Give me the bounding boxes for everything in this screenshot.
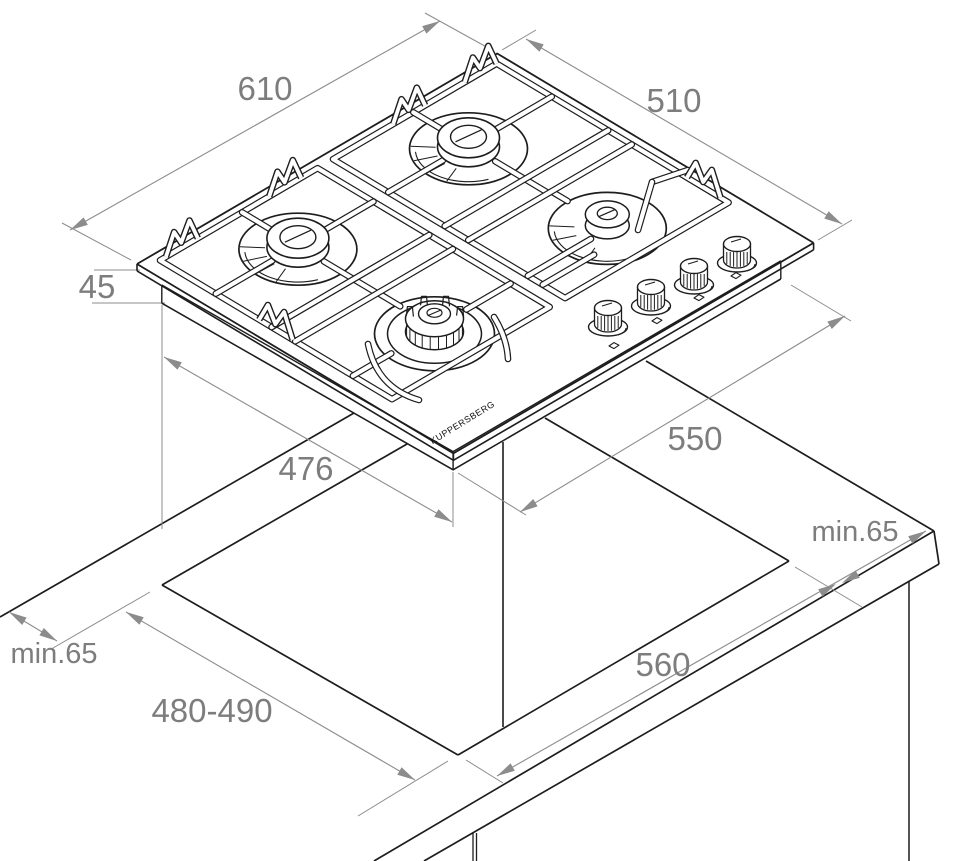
svg-text:45: 45 [79,268,116,305]
svg-text:560: 560 [635,646,690,683]
svg-text:476: 476 [278,450,333,487]
svg-text:min.65: min.65 [811,516,898,548]
svg-text:510: 510 [646,82,701,119]
svg-text:480-490: 480-490 [151,692,272,729]
svg-text:550: 550 [667,420,722,457]
svg-text:610: 610 [237,70,292,107]
svg-text:min.65: min.65 [10,638,97,670]
